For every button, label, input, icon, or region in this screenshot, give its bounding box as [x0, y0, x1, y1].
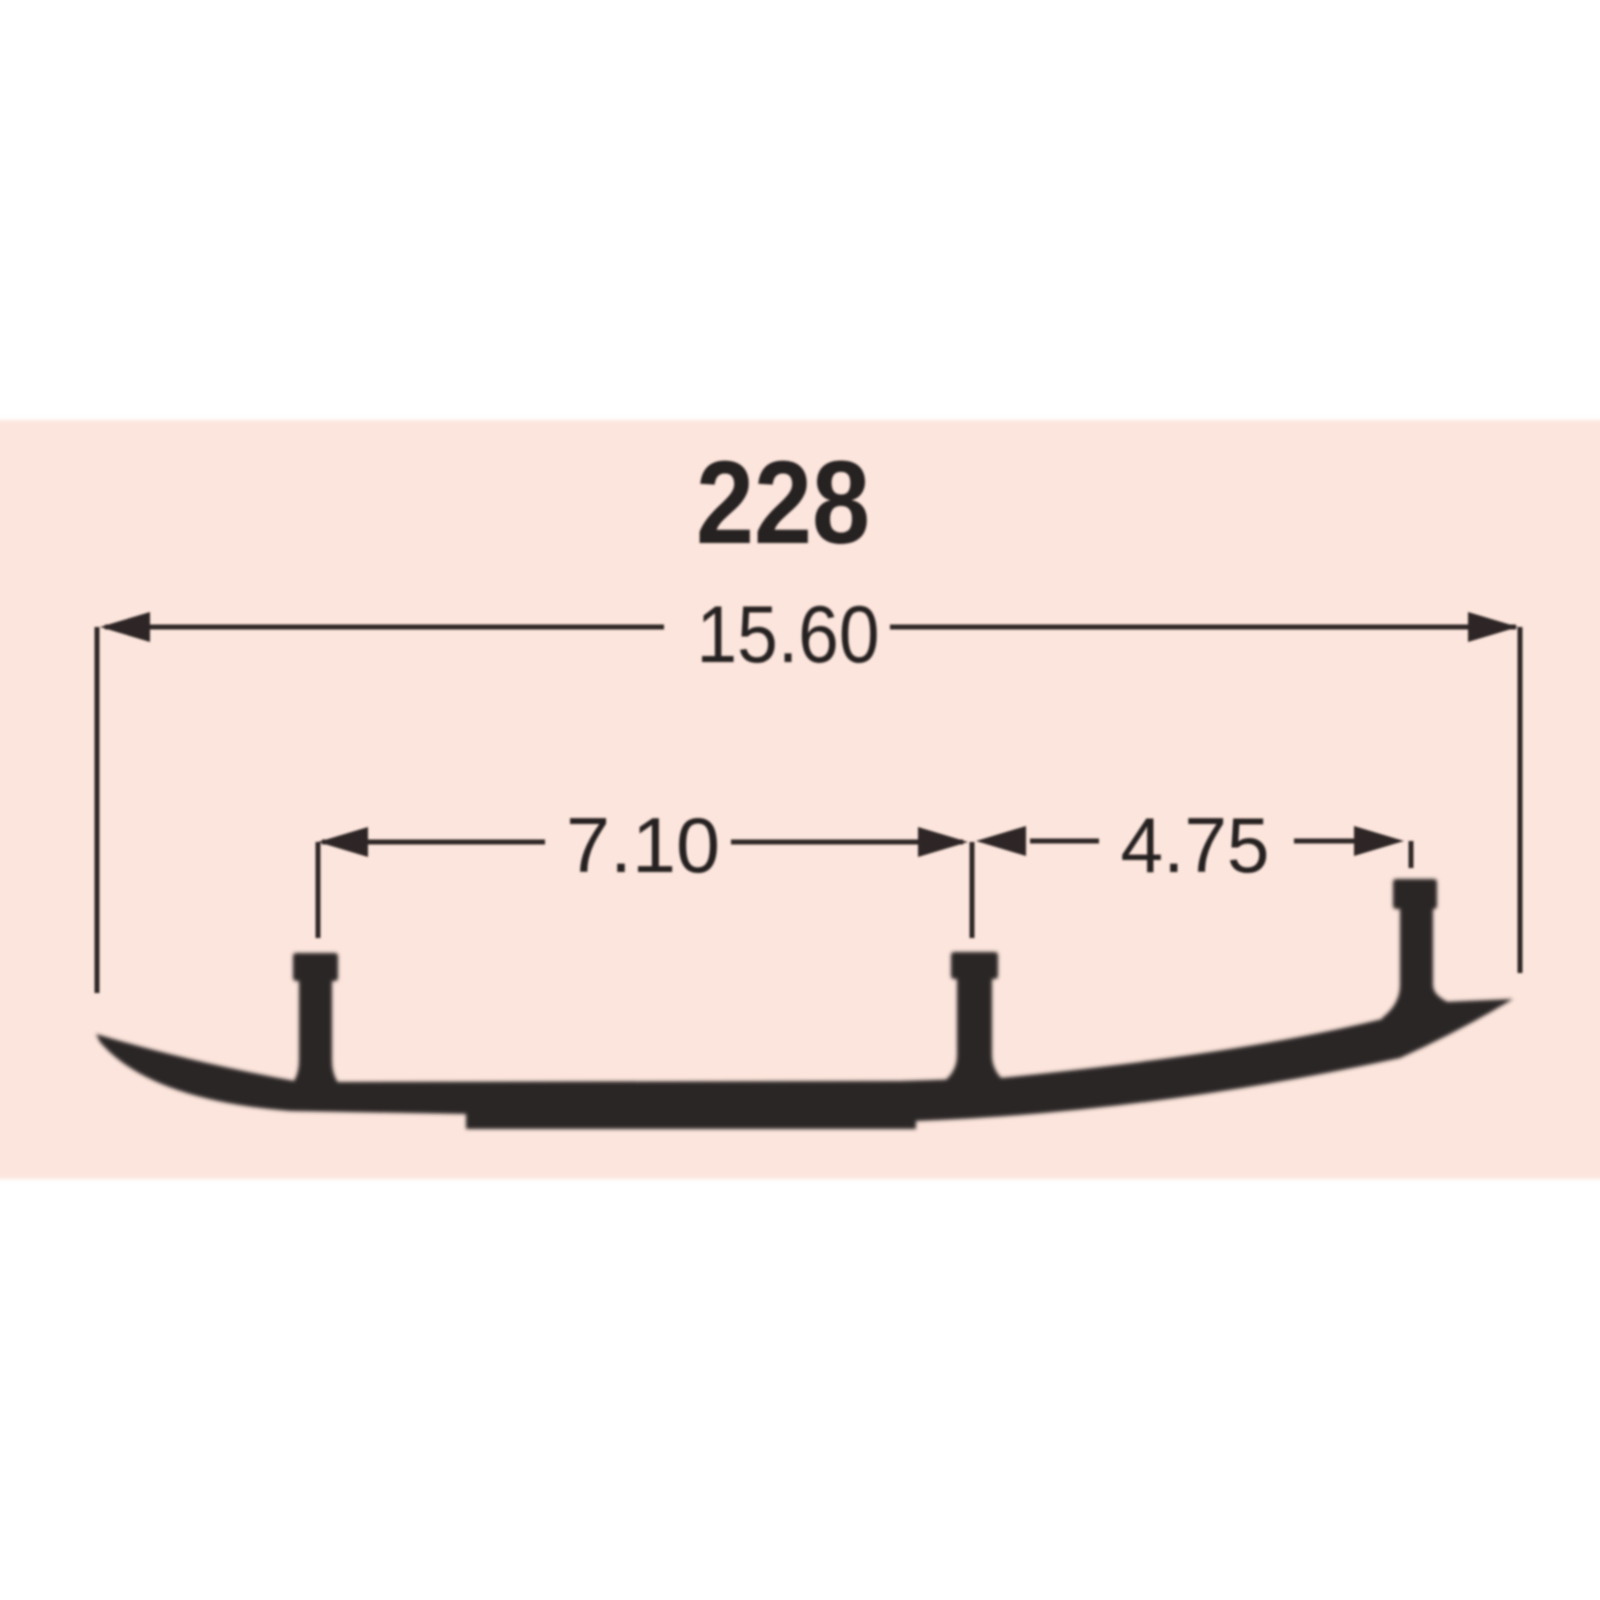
svg-text:7.10: 7.10: [566, 801, 720, 889]
svg-text:228: 228: [696, 437, 870, 569]
svg-text:15.60: 15.60: [697, 590, 880, 680]
svg-text:4.75: 4.75: [1121, 801, 1270, 889]
